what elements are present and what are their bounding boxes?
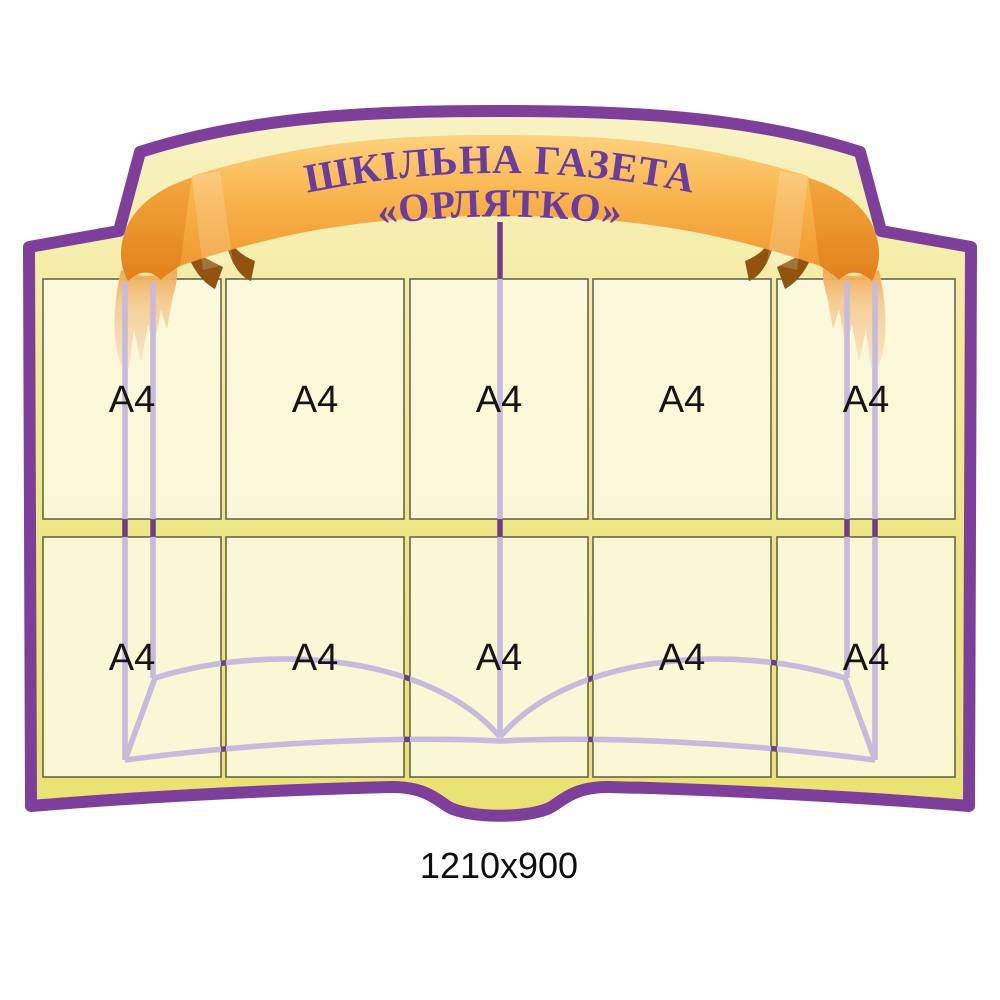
pocket-label: A4 <box>659 379 705 421</box>
pocket-label: A4 <box>109 379 155 421</box>
product-image-school-newspaper-stand: ШКІЛЬНА ГАЗЕТА «ОРЛЯТКО» A4 A4 A4 A4 A4 … <box>0 0 1000 1000</box>
pocket-label: A4 <box>476 379 522 421</box>
stand-board-graphic: ШКІЛЬНА ГАЗЕТА «ОРЛЯТКО» A4 A4 A4 A4 A4 … <box>0 0 1000 1000</box>
pocket-label: A4 <box>476 637 522 679</box>
pocket-label: A4 <box>292 379 338 421</box>
size-caption: 1210x900 <box>420 845 578 886</box>
pocket-label: A4 <box>843 637 889 679</box>
pocket-label: A4 <box>109 637 155 679</box>
pocket-label: A4 <box>659 637 705 679</box>
pocket-label: A4 <box>843 379 889 421</box>
pocket-label: A4 <box>292 637 338 679</box>
